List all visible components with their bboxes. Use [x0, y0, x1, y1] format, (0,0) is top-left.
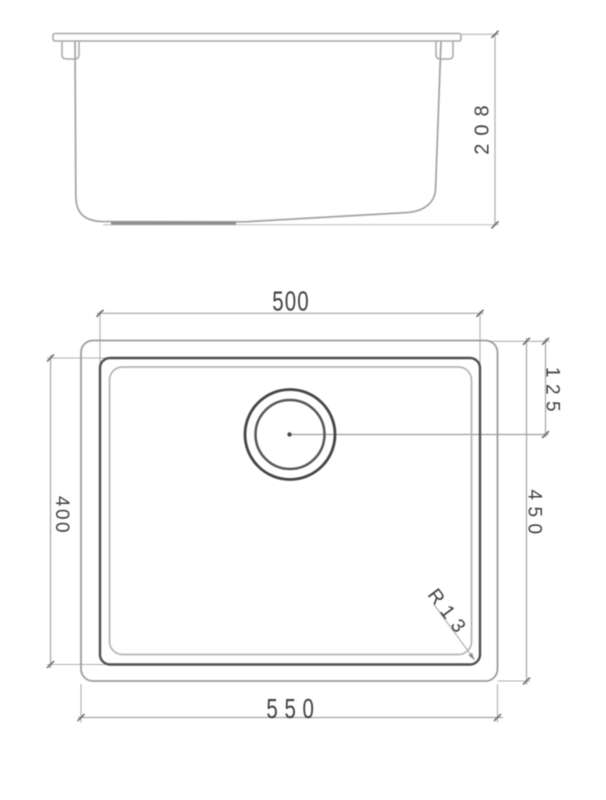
svg-text:450: 450	[524, 489, 545, 540]
svg-text:500: 500	[272, 287, 310, 318]
svg-text:125: 125	[542, 367, 563, 418]
svg-text:R13: R13	[423, 585, 474, 642]
svg-text:400: 400	[51, 496, 72, 535]
svg-text:550: 550	[266, 694, 320, 725]
svg-text:208: 208	[472, 97, 494, 154]
